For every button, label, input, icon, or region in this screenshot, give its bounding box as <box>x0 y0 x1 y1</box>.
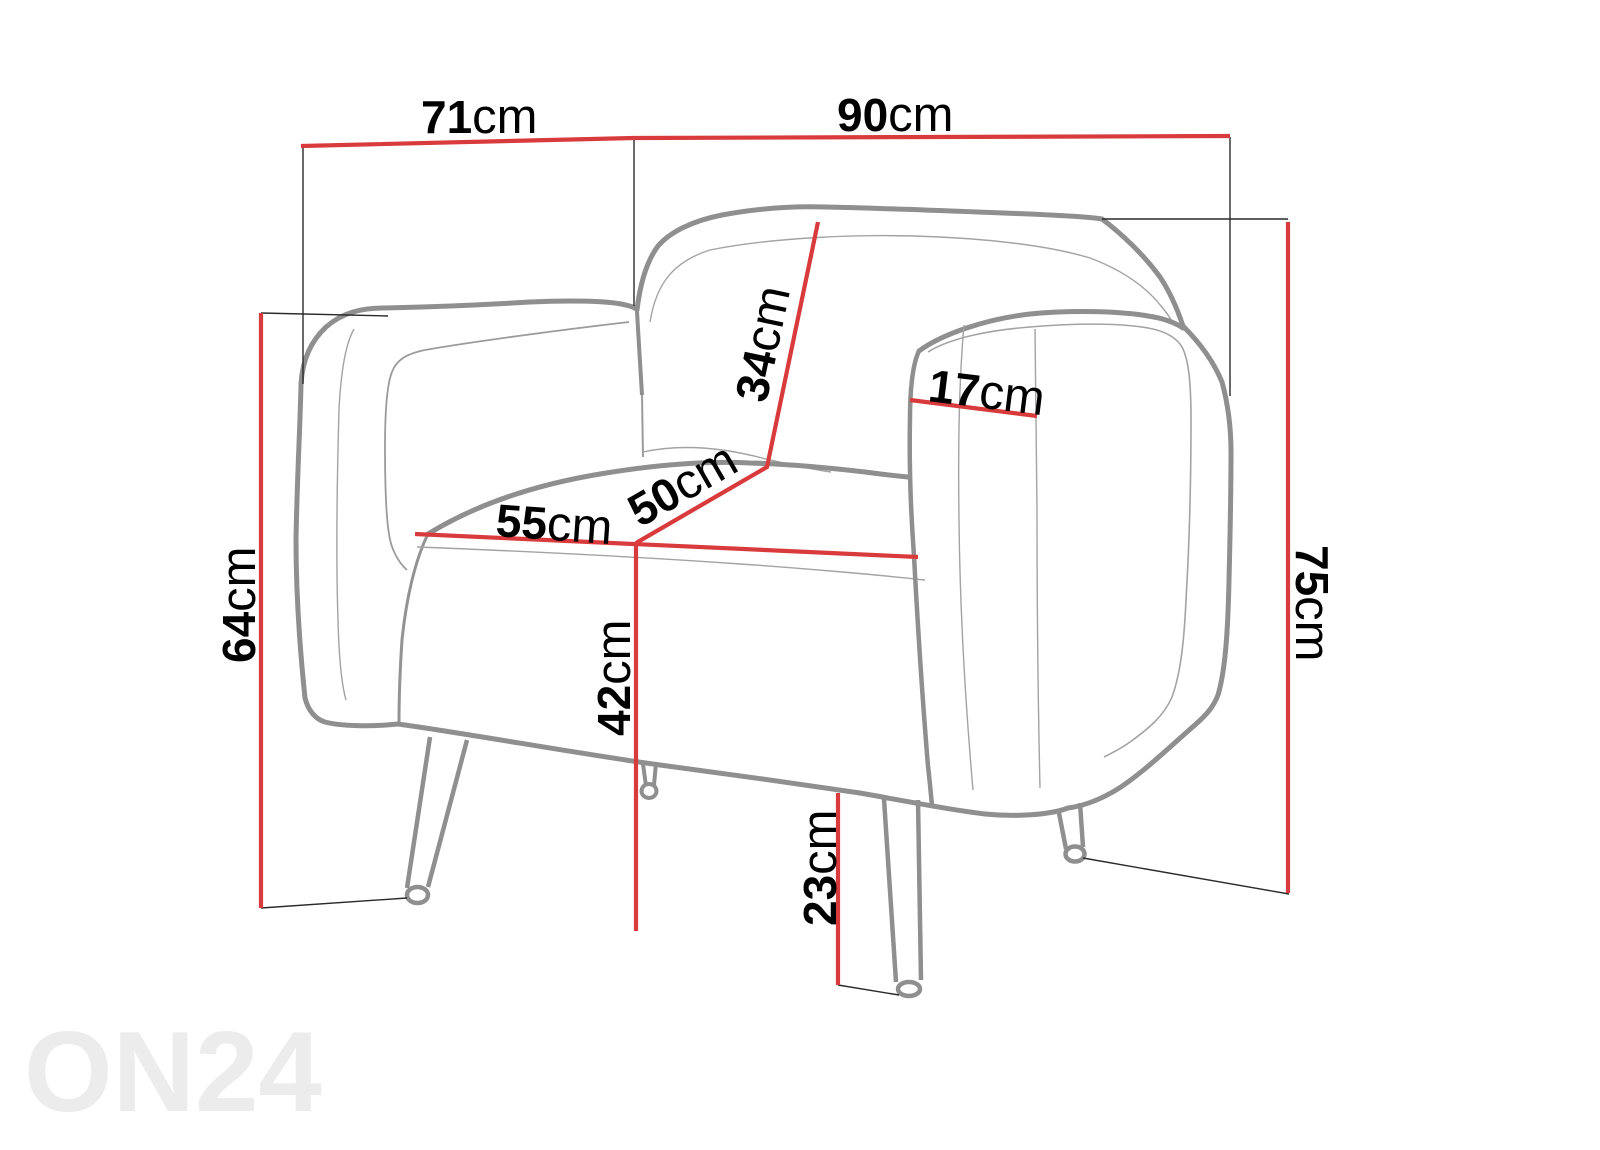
svg-text:23cm: 23cm <box>793 810 847 927</box>
svg-text:55cm: 55cm <box>494 493 614 555</box>
svg-text:64cm: 64cm <box>212 547 266 664</box>
svg-text:90cm: 90cm <box>837 88 954 142</box>
svg-text:42cm: 42cm <box>587 620 641 737</box>
svg-text:ON24: ON24 <box>24 1009 322 1136</box>
svg-text:75cm: 75cm <box>1285 545 1339 662</box>
svg-text:71cm: 71cm <box>421 90 538 144</box>
